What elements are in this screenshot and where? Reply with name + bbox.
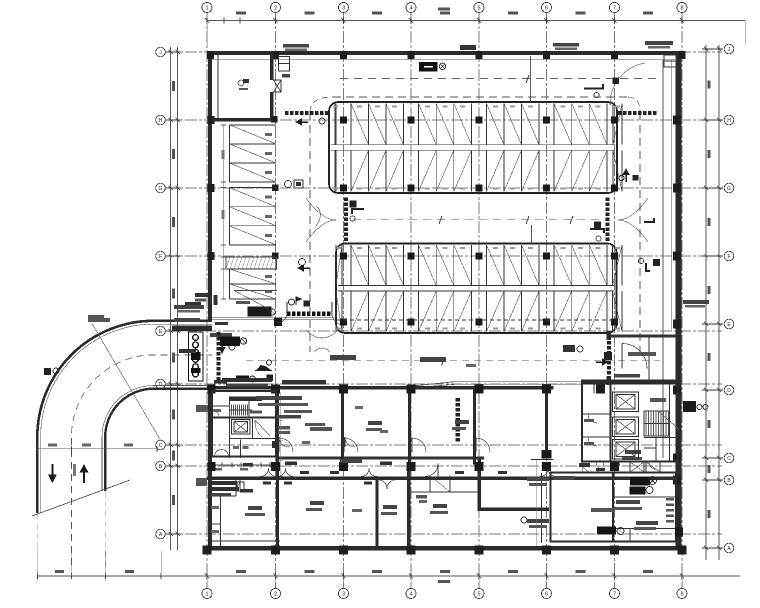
svg-text:D: D (159, 382, 163, 388)
svg-text:H: H (159, 118, 163, 124)
svg-text:7: 7 (613, 592, 616, 598)
svg-text:3: 3 (342, 592, 345, 598)
svg-text:C: C (727, 456, 731, 462)
svg-text:1: 1 (205, 592, 208, 598)
svg-text:8: 8 (680, 6, 683, 12)
svg-text:2: 2 (274, 6, 277, 12)
svg-text:5: 5 (477, 6, 480, 12)
svg-text:6: 6 (545, 6, 548, 12)
svg-text:C: C (159, 443, 163, 449)
svg-text:1: 1 (205, 6, 208, 12)
svg-text:6: 6 (545, 592, 548, 598)
svg-text:4: 4 (409, 6, 412, 12)
svg-text:G: G (727, 186, 731, 192)
svg-text:G: G (159, 186, 163, 192)
svg-text:3: 3 (342, 6, 345, 12)
svg-text:H: H (727, 118, 731, 124)
svg-text:D: D (727, 388, 731, 394)
svg-text:F: F (727, 254, 730, 260)
svg-text:8: 8 (680, 592, 683, 598)
svg-text:4: 4 (409, 592, 412, 598)
svg-text:F: F (159, 254, 162, 260)
svg-text:5: 5 (477, 592, 480, 598)
svg-text:7: 7 (613, 6, 616, 12)
svg-text:2: 2 (274, 592, 277, 598)
